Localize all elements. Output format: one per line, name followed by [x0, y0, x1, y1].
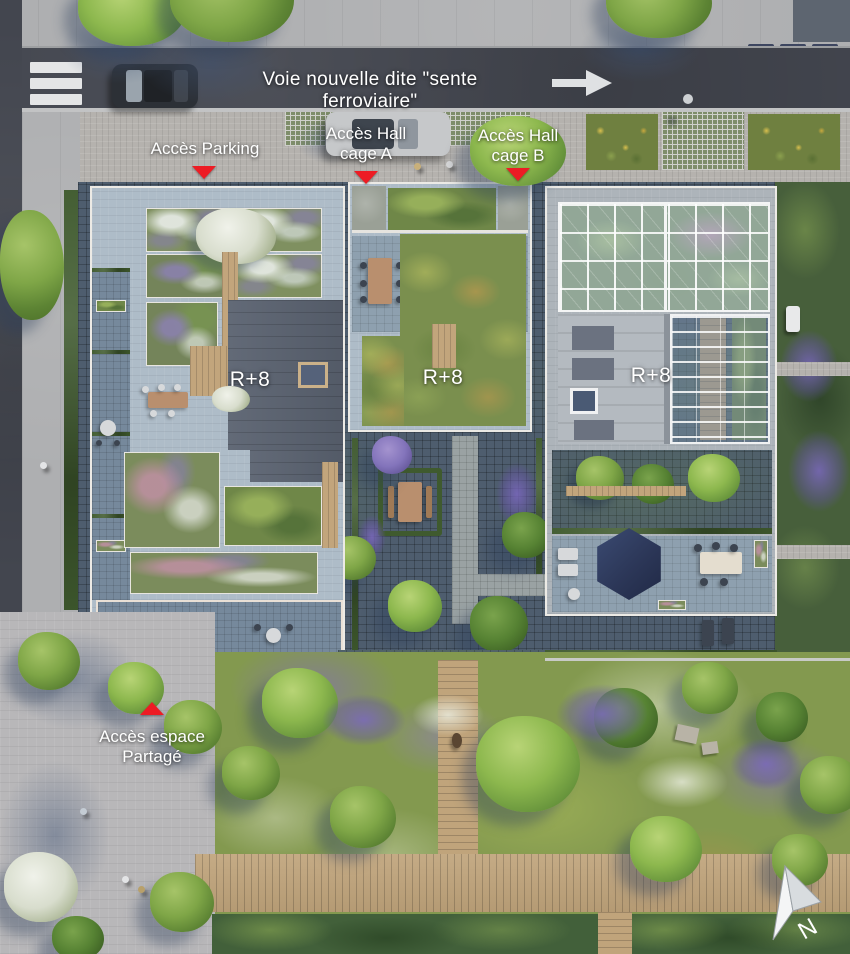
purple-flower-patch: [730, 738, 802, 790]
blossom-tree: [4, 852, 78, 922]
chair: [286, 624, 293, 631]
tree: [632, 464, 674, 504]
round-table: [100, 420, 116, 436]
crosswalk-stripe: [30, 94, 82, 105]
road-name-label: Voie nouvelle dite "sente ferroviaire": [230, 69, 510, 114]
green-roof-panel: [130, 552, 318, 594]
boardwalk-horizontal: [195, 854, 850, 912]
boardwalk-stub: [598, 912, 632, 954]
sun-lounger: [722, 618, 734, 644]
chair: [174, 384, 181, 391]
planter: [754, 540, 768, 568]
dining-table: [148, 392, 188, 408]
chair: [360, 262, 367, 269]
purple-flower-patch: [556, 684, 648, 744]
grass-paver-patch: [662, 112, 744, 170]
chair: [700, 578, 708, 586]
courtyard-bench: [426, 486, 432, 518]
tree: [470, 596, 528, 652]
arrow-shaft: [552, 79, 586, 87]
chair: [360, 296, 367, 303]
access-hall-b-line2: cage B: [462, 146, 574, 166]
access-parking-marker: [192, 166, 216, 179]
crosswalk-stripe: [30, 78, 82, 89]
dining-table: [368, 258, 392, 304]
flower-bed: [586, 114, 658, 170]
courtyard-table: [398, 482, 422, 522]
pedestrian: [80, 808, 87, 815]
tree: [18, 632, 80, 690]
planter: [96, 300, 126, 312]
planter: [96, 540, 126, 552]
street-tree: [0, 210, 64, 320]
chair: [150, 410, 157, 417]
rock: [701, 741, 719, 755]
chair: [720, 578, 728, 586]
tree: [630, 816, 702, 882]
hedge: [552, 528, 772, 534]
access-shared-space-line2: Partagé: [62, 747, 242, 767]
planter: [658, 600, 686, 610]
garden-path-line: [545, 658, 850, 661]
access-hall-a-label: Accès Hall cage A: [310, 124, 422, 164]
north-label: N: [794, 913, 823, 945]
lounge-chair: [558, 548, 578, 560]
boardwalk-vertical: [438, 660, 478, 860]
chair: [712, 542, 720, 550]
chair: [96, 440, 102, 446]
tree: [800, 756, 850, 814]
garden-path: [566, 486, 686, 496]
chair: [114, 440, 120, 446]
purple-flower-patch: [788, 430, 850, 512]
access-hall-a-marker: [354, 171, 378, 184]
garden-path: [775, 545, 850, 559]
tree: [682, 662, 738, 714]
atrium-mullion: [664, 204, 667, 310]
dog: [452, 733, 462, 748]
garden-path: [775, 362, 850, 376]
flower-bed: [748, 114, 840, 170]
skylight: [572, 326, 614, 350]
white-flower-patch: [412, 694, 484, 736]
wood-deck: [432, 324, 456, 368]
chair: [142, 386, 149, 393]
skylight: [572, 358, 614, 380]
sun-lounger: [702, 620, 714, 646]
dining-table: [700, 552, 742, 574]
green-strip: [388, 188, 496, 230]
building-label-right: R+8: [616, 364, 686, 389]
chair: [694, 544, 702, 552]
tree: [150, 872, 214, 932]
pedestrian: [40, 462, 47, 469]
wood-deck-path: [322, 462, 338, 548]
lounge-chair: [558, 564, 578, 576]
green-roof-panel: [124, 452, 220, 548]
pedestrian: [138, 886, 145, 893]
round-table: [266, 628, 281, 643]
access-hall-b-label: Accès Hall cage B: [462, 126, 574, 166]
gravel-patch: [498, 186, 528, 230]
chair: [168, 410, 175, 417]
sedum-green-roof: [362, 336, 404, 426]
tree: [688, 454, 740, 502]
chair: [360, 280, 367, 287]
tree: [756, 692, 808, 742]
access-hall-b-line1: Accès Hall: [462, 126, 574, 146]
flower-shrub: [212, 386, 250, 412]
walkway-line: [352, 230, 528, 233]
framed-skylight: [570, 388, 598, 414]
access-hall-a-line2: cage A: [310, 144, 422, 164]
access-hall-b-marker: [506, 168, 530, 181]
chair: [730, 544, 738, 552]
street-lamp: [683, 94, 693, 104]
roof-skylight: [298, 362, 328, 388]
balcony-divider-hedge: [92, 268, 130, 272]
access-shared-space-label: Accès espace Partagé: [62, 727, 242, 767]
green-roof-panel: [224, 486, 322, 546]
access-shared-space-line1: Accès espace: [62, 727, 242, 747]
flowering-tree: [372, 436, 412, 474]
small-parked-car: [786, 306, 800, 332]
access-shared-space-marker: [140, 702, 164, 715]
tree: [502, 512, 550, 558]
purple-flower-patch: [322, 694, 406, 746]
chair: [254, 624, 261, 631]
building-label-middle: R+8: [408, 366, 478, 391]
right-garden-strip: [775, 182, 850, 664]
gravel-patch: [352, 186, 386, 230]
pedestrian: [446, 161, 453, 168]
north-arrow: N: [758, 862, 840, 952]
tree: [388, 580, 442, 632]
hedge-band: [212, 914, 598, 954]
chair: [158, 384, 165, 391]
glass-atrium: [558, 202, 770, 312]
pedestrian: [122, 876, 129, 883]
balcony-divider-hedge: [92, 350, 130, 354]
white-flower-patch: [636, 756, 728, 808]
site-plan-aerial-view: R+8: [0, 0, 850, 954]
access-hall-a-line1: Accès Hall: [310, 124, 422, 144]
courtyard-bench: [388, 486, 394, 518]
fire-pit: [568, 588, 580, 600]
building-roof-corner: [793, 0, 850, 42]
hedge: [64, 190, 78, 610]
sedum-green-roof: [400, 234, 526, 426]
skylight: [574, 420, 614, 440]
access-parking-label: Accès Parking: [120, 139, 290, 159]
tree: [330, 786, 396, 848]
